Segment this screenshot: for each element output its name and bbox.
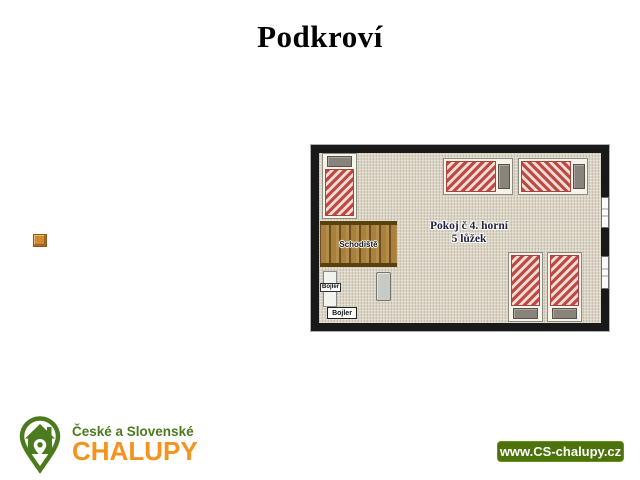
wood-swatch-icon: [33, 234, 47, 247]
bed: [518, 158, 588, 195]
house-location-pin-icon: [17, 414, 63, 474]
bed: [322, 153, 357, 219]
staircase: Schodiště: [320, 221, 397, 267]
window: [601, 256, 609, 289]
room-label-line1: Pokoj č 4. horní: [399, 220, 539, 233]
website-badge[interactable]: www.CS-chalupy.cz: [497, 441, 624, 462]
bed: [547, 252, 582, 322]
brand-text: České a Slovenské CHALUPY: [72, 424, 198, 464]
bed: [443, 158, 513, 195]
page-title: Podkroví: [0, 19, 640, 55]
bed-blanket: [521, 161, 571, 192]
bed: [508, 252, 543, 322]
floorplan: Schodiště Bojler Bojler Pokoj č 4. horní…: [311, 145, 609, 331]
bed-blanket: [550, 255, 579, 306]
brand-logo: České a Slovenské CHALUPY: [17, 414, 198, 474]
room-label-line2: 5 lůžek: [399, 233, 539, 246]
staircase-label: Schodiště: [339, 240, 377, 249]
bed-pillow: [327, 156, 352, 167]
door: [376, 272, 391, 301]
bed-blanket: [446, 161, 496, 192]
bed-blanket: [511, 255, 540, 306]
window: [601, 197, 609, 228]
bed-blanket: [325, 169, 354, 216]
bed-pillow: [513, 308, 538, 319]
bed-pillow: [552, 308, 577, 319]
brand-name-main: CHALUPY: [72, 439, 198, 464]
boiler-label: Bojler: [327, 307, 357, 319]
page: Podkroví Schodiště Bojler: [0, 0, 640, 480]
room-label: Pokoj č 4. horní 5 lůžek: [399, 220, 539, 246]
bed-pillow: [573, 164, 585, 189]
boiler-label: Bojler: [320, 283, 341, 292]
bed-pillow: [498, 164, 510, 189]
